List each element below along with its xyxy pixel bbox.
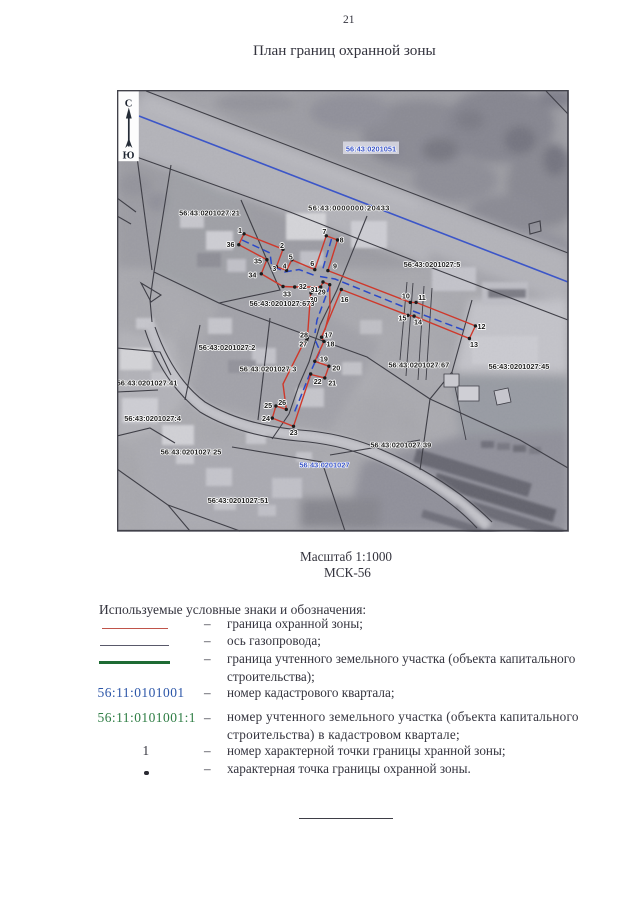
- svg-text:8: 8: [340, 236, 344, 245]
- svg-text:13: 13: [470, 340, 478, 349]
- svg-text:5: 5: [289, 253, 293, 262]
- svg-text:6: 6: [310, 259, 314, 268]
- svg-text:56:43:0201027: 56:43:0201027: [299, 461, 349, 470]
- svg-text:18: 18: [327, 340, 335, 349]
- svg-text:56:43:0201027:2: 56:43:0201027:2: [199, 343, 256, 352]
- svg-text:19: 19: [320, 355, 328, 364]
- svg-text:22: 22: [314, 377, 322, 386]
- svg-text:31: 31: [310, 285, 318, 294]
- svg-text:15: 15: [399, 314, 407, 323]
- svg-text:56:43:0201027:41: 56:43:0201027:41: [117, 379, 177, 388]
- svg-text:10: 10: [402, 292, 410, 301]
- svg-text:56:43:0201027:4: 56:43:0201027:4: [124, 414, 182, 423]
- svg-text:12: 12: [478, 322, 486, 331]
- svg-text:25: 25: [264, 401, 272, 410]
- svg-text:С: С: [125, 99, 133, 110]
- svg-text:56:43:0201027:51: 56:43:0201027:51: [208, 496, 269, 505]
- svg-text:24: 24: [262, 414, 270, 423]
- svg-text:14: 14: [414, 318, 422, 327]
- svg-text:56:43:0201027:25: 56:43:0201027:25: [161, 448, 222, 457]
- svg-text:35: 35: [254, 257, 262, 266]
- svg-text:26: 26: [278, 398, 286, 407]
- svg-text:56:43:0201027:5: 56:43:0201027:5: [404, 260, 461, 269]
- svg-text:56:43:0201027:67: 56:43:0201027:67: [388, 361, 449, 370]
- svg-text:23: 23: [290, 428, 298, 437]
- svg-text:56:43:0201051: 56:43:0201051: [346, 145, 396, 154]
- svg-text:56:43:0201027:3: 56:43:0201027:3: [240, 365, 297, 374]
- svg-text:3: 3: [272, 264, 276, 273]
- svg-text:9: 9: [333, 262, 337, 271]
- svg-text:56:43:0201027:39: 56:43:0201027:39: [370, 441, 431, 450]
- svg-text:16: 16: [341, 295, 349, 304]
- svg-text:17: 17: [324, 331, 332, 340]
- svg-text:34: 34: [248, 271, 256, 280]
- svg-text:21: 21: [328, 379, 336, 388]
- svg-text:20: 20: [332, 364, 340, 373]
- svg-text:7: 7: [322, 227, 326, 236]
- svg-text:56:43:0000000:20433: 56:43:0000000:20433: [308, 204, 390, 213]
- svg-text:11: 11: [418, 293, 426, 302]
- svg-text:28: 28: [300, 331, 308, 340]
- svg-text:29: 29: [318, 288, 326, 297]
- svg-text:36: 36: [227, 240, 235, 249]
- svg-text:2: 2: [280, 241, 284, 250]
- svg-text:4: 4: [283, 262, 287, 271]
- svg-text:56:43:0201027:45: 56:43:0201027:45: [488, 362, 549, 371]
- svg-text:27: 27: [299, 340, 307, 349]
- svg-text:Ю: Ю: [123, 151, 135, 162]
- svg-text:1: 1: [238, 226, 242, 235]
- svg-text:56:43:0201027:673: 56:43:0201027:673: [250, 299, 315, 308]
- svg-text:56:43:0201027:21: 56:43:0201027:21: [179, 209, 240, 218]
- svg-text:33: 33: [283, 290, 291, 299]
- svg-text:32: 32: [299, 282, 307, 291]
